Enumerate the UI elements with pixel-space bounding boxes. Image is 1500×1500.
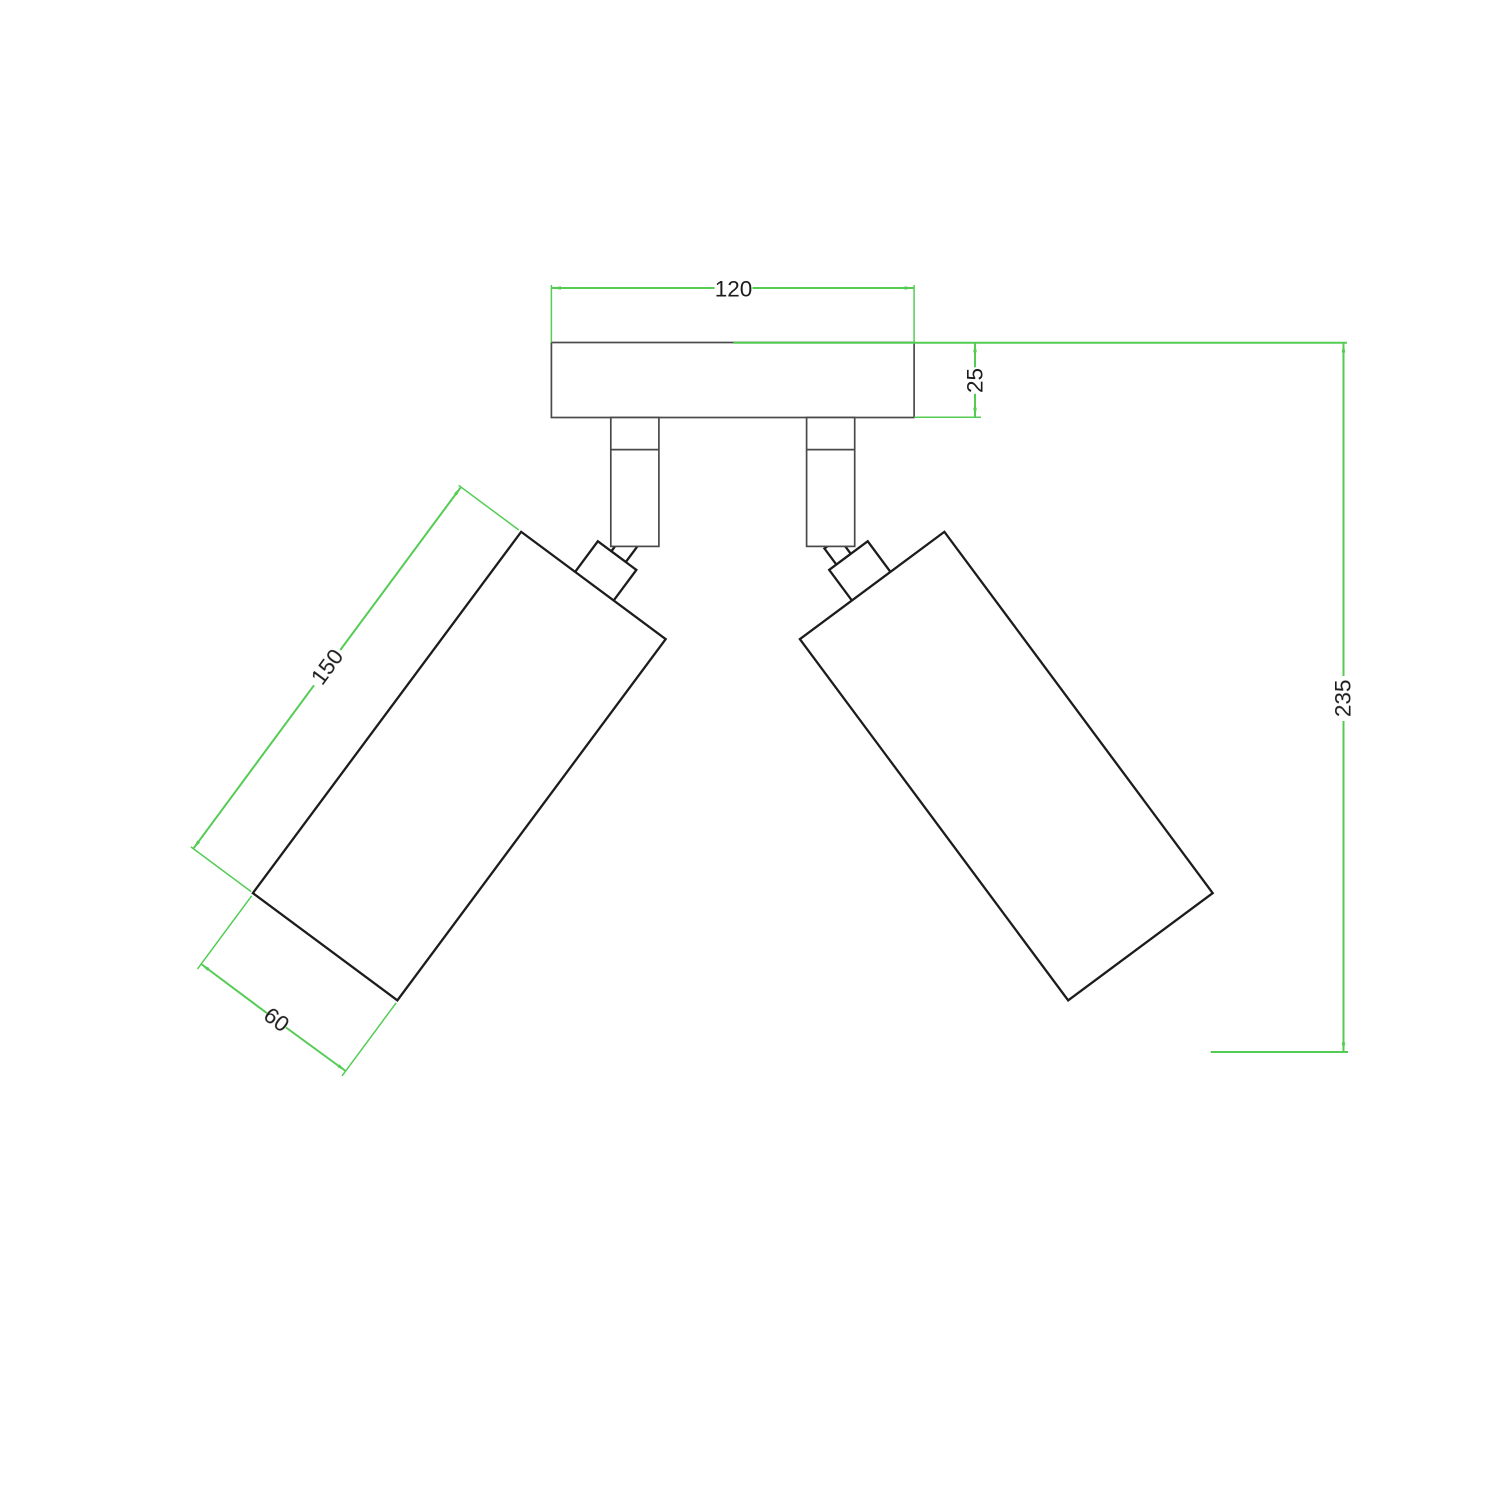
svg-text:235: 235 <box>1331 680 1356 718</box>
svg-text:120: 120 <box>715 277 753 302</box>
svg-text:25: 25 <box>963 368 988 393</box>
